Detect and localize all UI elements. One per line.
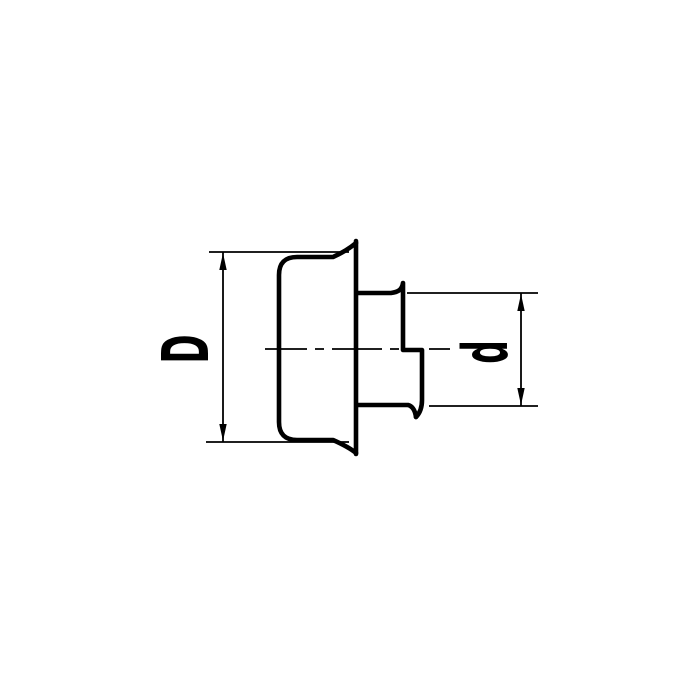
technical-drawing-canvas: D d xyxy=(0,0,700,700)
cap-body-outline xyxy=(279,243,356,453)
dimension-drawing xyxy=(0,0,700,700)
shaft-lower-edge xyxy=(358,405,416,417)
shaft-upper-outline xyxy=(358,283,422,417)
arrowhead-d-up xyxy=(517,294,524,311)
arrowhead-D-down xyxy=(219,424,226,441)
arrowhead-D-up xyxy=(219,253,226,270)
dimension-label-small-diameter: d xyxy=(455,340,517,364)
arrowhead-d-down xyxy=(517,388,524,405)
dimension-label-large-diameter: D xyxy=(155,334,219,363)
